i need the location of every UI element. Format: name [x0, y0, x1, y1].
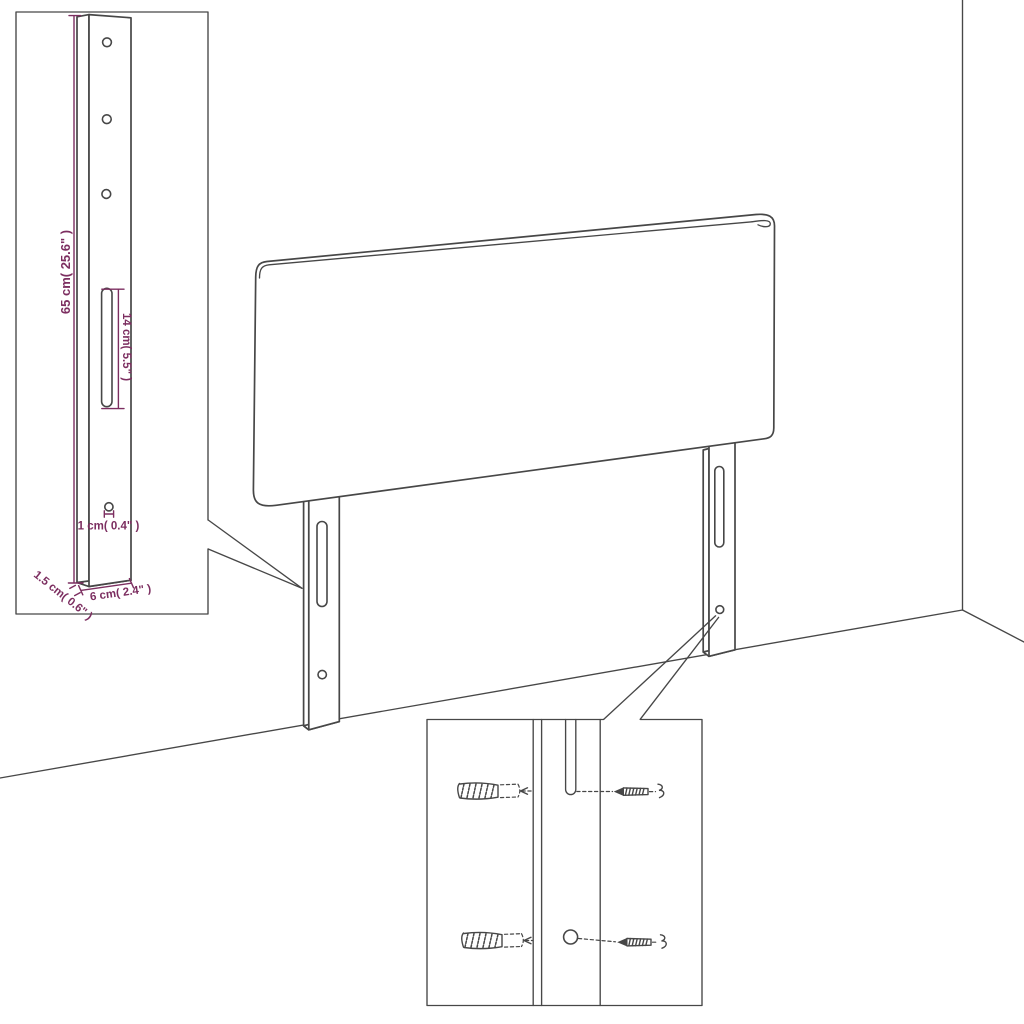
assembly-diagram-page: 65 cm( 25.6" ) 14 cm( 5.5" ) 1 cm( 0.4" …	[0, 0, 1024, 1024]
wall-plug-ribs	[461, 784, 494, 799]
headboard-left-leg	[304, 486, 340, 730]
screw-break-squiggle	[658, 784, 664, 797]
right-leg-slot	[715, 467, 724, 548]
left-callout-pointers	[208, 520, 302, 588]
detail-leg	[77, 15, 131, 587]
headboard-panel	[253, 214, 774, 506]
screw-tip	[619, 939, 628, 946]
hardware-callout	[427, 720, 702, 1006]
dimension-label-14cm: 14 cm( 5.5" )	[120, 313, 132, 381]
headboard-outline	[253, 214, 774, 506]
leg-strip-hole	[564, 930, 578, 944]
leg-strip-slot	[566, 720, 576, 795]
dimension-label-65cm: 65 cm( 25.6" )	[58, 230, 73, 314]
leg-detail-callout: 65 cm( 25.6" ) 14 cm( 5.5" ) 1 cm( 0.4" …	[16, 12, 208, 623]
pointer-line	[208, 520, 302, 588]
screw-break-squiggle	[661, 935, 667, 948]
detail-leg-hole-2	[102, 115, 111, 124]
hardware-leg-strip	[533, 720, 600, 1006]
dimension-label-1cm: 1 cm( 0.4" )	[78, 521, 140, 533]
pointer-line	[604, 616, 716, 720]
screw-leader-line	[579, 939, 616, 942]
left-leg-slot	[317, 522, 327, 607]
wall-plug-ghost	[505, 934, 524, 947]
floor-line-left	[0, 610, 963, 778]
screw-bottom	[579, 935, 667, 948]
detail-leg-side-face	[77, 15, 89, 587]
right-leg-screw-hole	[716, 606, 724, 614]
wall-plug-bottom	[462, 932, 533, 948]
detail-leg-hole-3	[102, 190, 111, 199]
pointer-line	[640, 617, 718, 719]
detail-leg-small-hole	[105, 503, 113, 511]
wall-plug-ribs	[465, 934, 498, 949]
headboard-right-leg	[703, 443, 735, 657]
left-leg-screw-hole	[318, 670, 326, 678]
detail-leg-slot	[102, 288, 112, 406]
dimension-label-6cm: 6 cm( 2.4" )	[89, 583, 152, 603]
wall-plug-ghost	[501, 784, 520, 797]
floor-line-right	[963, 610, 1024, 642]
hardware-box-border	[427, 720, 702, 1006]
headboard-assembly-diagram: 65 cm( 25.6" ) 14 cm( 5.5" ) 1 cm( 0.4" …	[0, 0, 1024, 1024]
screw-top	[577, 784, 664, 797]
wall-plug-top	[458, 783, 533, 799]
detail-leg-hole-1	[103, 38, 112, 47]
screw-tip	[615, 788, 624, 795]
leg-strip-edges	[533, 720, 600, 1006]
hardware-callout-pointers	[604, 616, 719, 720]
